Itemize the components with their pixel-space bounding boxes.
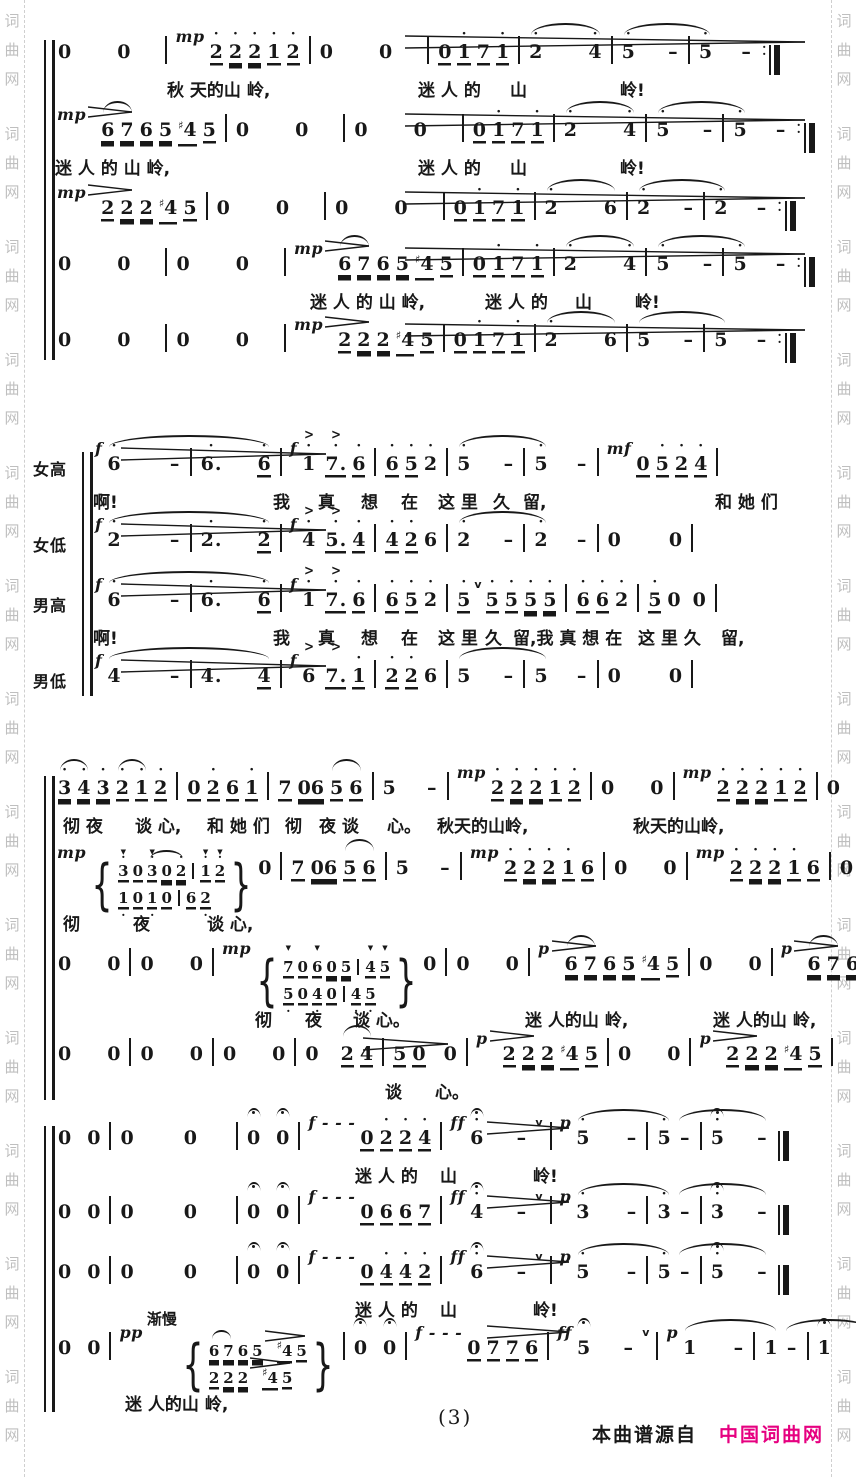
spacer <box>133 345 159 346</box>
watermark-char: 网 <box>4 1085 19 1106</box>
rest-note: 0 <box>360 1201 373 1223</box>
notation-row: 00mp2·2·2·1·2·0001·71·2·4·5·–5·–·· <box>55 36 811 76</box>
system-4: 000000f - - -02·2·4·ff6·–vp5·–5·–5·–迷 人 … <box>55 1122 811 1416</box>
octave-dot-above: · <box>562 848 575 853</box>
spacer <box>157 969 187 970</box>
rest-note: 0 <box>58 1043 71 1065</box>
note: 6· <box>107 453 120 475</box>
fermata-icon <box>276 1108 289 1117</box>
octave-dot-above: · <box>699 32 712 37</box>
note: 4 <box>360 1043 373 1065</box>
rest-note: 0 <box>840 857 853 879</box>
lyric-text: 秋天的山岭, <box>437 812 528 837</box>
lyric-text: 这 里 <box>438 624 478 649</box>
note: 5 <box>341 959 351 976</box>
dash-note: – <box>515 1127 527 1149</box>
note: 2· <box>380 1127 393 1149</box>
thick-bar <box>783 1265 789 1295</box>
slur-group: 5·–5· <box>653 248 749 282</box>
note: 6· <box>385 453 398 475</box>
barline <box>565 584 567 612</box>
note: 7 <box>477 41 490 63</box>
note: 5· <box>505 589 518 611</box>
note: 2· <box>207 777 220 799</box>
music-line: 0000mp6765♯4501·71·2·4·5·–5·–··迷 人 的 山 岭… <box>55 248 811 314</box>
octave-dot-above: · <box>576 1118 589 1123</box>
octave-dot-above: · <box>694 444 707 449</box>
octave-dot-above: · <box>201 520 222 525</box>
spacer <box>781 1353 783 1354</box>
dash-note: – <box>755 329 767 351</box>
note: 2 <box>120 197 133 219</box>
spacer <box>137 1217 181 1218</box>
octave-dot-above: · <box>385 580 398 585</box>
thick-bar <box>774 45 780 75</box>
note: 1· <box>531 119 544 141</box>
music-line: 0000mp222♯4501·71·2·65–5–·· <box>55 324 811 364</box>
octave-dot-above: · <box>755 768 768 773</box>
note: 4· <box>623 253 636 275</box>
octave-dot-above: · <box>529 768 542 773</box>
spacer <box>592 1217 622 1218</box>
octave-dot-above: · <box>229 32 242 37</box>
barline <box>686 852 688 880</box>
lyrics-row: 谈心。 <box>55 1078 811 1104</box>
note: 4· <box>588 41 601 63</box>
slur-group: 3·–3· <box>573 1196 673 1230</box>
slur-group: 5·–5· <box>454 448 550 482</box>
watermark-char: 词 <box>4 123 19 144</box>
watermark-char: 曲 <box>836 378 851 399</box>
octave-dot-above: · <box>623 110 636 115</box>
watermark-char: 网 <box>4 859 19 880</box>
note: 5 <box>282 1370 292 1387</box>
sharp-icon: ♯ <box>641 953 646 966</box>
dash-note: – <box>625 1201 637 1223</box>
rest-note: 0 <box>473 253 486 275</box>
music-line: 男低f4–4.4f6>7.>1·2·2·65–5–00 <box>55 660 811 700</box>
lyrics-row: 啊!我真想在这 里久留,我 真 想 在这 里 久留, <box>93 624 811 650</box>
note: 6 <box>380 1201 393 1223</box>
octave-dot-above: · <box>325 444 346 449</box>
note: 2· <box>749 857 762 879</box>
breath-mark-icon: v <box>474 578 481 591</box>
octave-dot-above: · <box>380 1118 393 1123</box>
rest-note: 0 <box>133 890 143 907</box>
dotted-rhythm-dot: . <box>215 529 222 551</box>
dynamic-mark: ff <box>450 1187 465 1206</box>
note: 3·▼ <box>118 863 128 880</box>
barline <box>829 852 831 880</box>
breath-mark-icon: v <box>535 1190 542 1203</box>
rest-note: 0 <box>506 953 519 975</box>
watermark-char: 词 <box>4 10 19 31</box>
octave-dot-above: · <box>717 768 730 773</box>
octave-dot-above: · <box>711 1118 724 1123</box>
notation-row: 0000mp222♯4501·71·2·65–5–·· <box>55 324 811 364</box>
note: 5 <box>457 665 470 687</box>
watermark-char: 曲 <box>4 1056 19 1077</box>
spacer <box>551 681 573 682</box>
octave-dot-above: · <box>730 848 743 853</box>
rest-note: 0 <box>438 41 451 63</box>
slur-group: 6·–6.·6· <box>104 448 273 482</box>
note: 2· <box>534 529 547 551</box>
page-number: (3) <box>438 1405 472 1429</box>
note: 2 <box>238 1370 248 1387</box>
note: 7▼ <box>283 959 293 976</box>
lyric-text: 谈 心, <box>207 910 253 935</box>
octave-dot-above: · <box>657 1192 670 1197</box>
spacer <box>672 135 698 136</box>
barline <box>673 772 675 800</box>
dynamic-mark: p <box>699 1029 711 1048</box>
note: 2· <box>176 863 186 880</box>
slur-group: 2·1· <box>113 772 151 806</box>
dynamic-mark: p <box>666 1323 678 1342</box>
note: 1·> <box>302 453 315 475</box>
barline <box>688 948 690 976</box>
thin-bar <box>785 201 787 231</box>
octave-dot-above: · <box>505 580 518 585</box>
chord-rows: 7▼06▼054▼5▼5·04·04·5· <box>281 955 392 1009</box>
octave-dot-above: · <box>470 1118 483 1123</box>
note: 6 <box>807 953 820 975</box>
spacer <box>200 1143 230 1144</box>
notation-row: 000000f - - -04·4·2·ff6·–vp5·–5·–5·– <box>55 1256 811 1296</box>
barline <box>176 772 178 800</box>
barline <box>446 524 448 552</box>
brace-close-icon: } <box>312 1338 333 1393</box>
watermark-char: 曲 <box>836 39 851 60</box>
watermark-char: 网 <box>4 520 19 541</box>
octave-dot-above: · <box>457 32 470 37</box>
note: 6 <box>101 119 114 141</box>
spacer <box>715 57 737 58</box>
chord-stack: {6765♯45222♯45} <box>179 1339 337 1393</box>
notation-row: 0000mp{7▼06▼054▼5▼5·04·04·5·}000p6765♯45… <box>55 942 811 1006</box>
thin-bar <box>769 45 771 75</box>
dash-note: – <box>775 119 787 141</box>
watermark-char: 网 <box>836 68 851 89</box>
barline <box>646 1122 648 1150</box>
dynamic-mark: f - - - <box>415 1323 462 1342</box>
watermark-char: 曲 <box>836 830 851 851</box>
lyric-text: 彻 <box>63 910 80 935</box>
music-line: 00pp渐慢{6765♯45222♯45}00f - - -0776ff5–vp… <box>55 1326 811 1416</box>
spacer <box>727 1143 753 1144</box>
barline <box>597 448 599 476</box>
barline <box>646 1256 648 1284</box>
spacer <box>580 135 620 136</box>
octave-dot-above: · <box>736 768 749 773</box>
note: 6 <box>140 119 153 141</box>
dynamic-mark: f <box>290 439 297 458</box>
brace-close-icon: } <box>396 954 417 1009</box>
watermark-char: 词 <box>4 236 19 257</box>
spacer <box>672 269 698 270</box>
rest-note: 0 <box>298 959 308 976</box>
lyric-text: 彻 夜 <box>63 812 103 837</box>
barline <box>294 1038 296 1066</box>
octave-dot-above: · <box>615 580 628 585</box>
dynamic-mark: f <box>95 439 102 458</box>
music-line: 000000f - - -0667ff4·–vp3·–3·–3·– <box>55 1196 811 1236</box>
rest-note: 0 <box>58 253 71 275</box>
barline <box>716 448 718 476</box>
rest-note: 0 <box>601 777 614 799</box>
thin-bar <box>778 1205 780 1235</box>
marcato-icon: ▼ <box>150 848 155 855</box>
brace-close-icon: } <box>231 858 252 913</box>
barline <box>831 1038 833 1066</box>
note: 2 <box>377 329 390 351</box>
rest-note: 0 <box>117 253 130 275</box>
rest-note: 0 <box>58 1201 71 1223</box>
note: 6· <box>352 453 365 475</box>
note: 2· <box>564 253 577 275</box>
lyric-text: 秋 天的山 岭, <box>167 76 270 101</box>
rest-note: 0 <box>383 1337 396 1359</box>
slur-group: 24 <box>338 1038 376 1072</box>
dash-note: – <box>679 1201 691 1223</box>
octave-dot-above: · <box>96 768 109 773</box>
spacer <box>530 1277 534 1278</box>
final-barline <box>778 1262 789 1296</box>
lyric-text: 夜 <box>133 910 150 935</box>
system-1: 00mp2·2·2·1·2·0001·71·2·4·5·–5·–··秋 天的山 … <box>55 36 811 364</box>
barline <box>357 959 359 975</box>
note: 4 <box>257 665 270 687</box>
note: 5· <box>656 119 669 141</box>
octave-dot-above: · <box>385 656 398 661</box>
spacer <box>74 969 104 970</box>
spacer <box>715 969 745 970</box>
octave-dot-above: · <box>492 244 505 249</box>
octave-dot-above: · <box>473 188 486 193</box>
octave-dot-above: · <box>543 580 556 585</box>
dynamic-mark: mp <box>457 763 486 782</box>
watermark-char: 网 <box>836 1198 851 1219</box>
note: 5 <box>714 329 727 351</box>
spacer <box>137 1143 181 1144</box>
thick-bar <box>790 333 796 363</box>
note: 1· <box>147 890 157 907</box>
dash-note: – <box>622 1337 634 1359</box>
note: 4· <box>312 986 322 1003</box>
octave-dot-above: · <box>564 244 577 249</box>
note: 2· <box>210 41 223 63</box>
octave-dot-above: · <box>714 188 727 193</box>
note: 4. <box>201 665 222 687</box>
barline <box>523 524 525 552</box>
lyric-text: 在 <box>401 624 418 649</box>
spacer <box>637 1353 641 1354</box>
rest-note: 0 <box>161 890 171 907</box>
rest-note: 0 <box>58 1261 71 1283</box>
lyric-text: 谈 心, <box>135 812 181 837</box>
octave-dot-above: · <box>257 580 270 585</box>
spacer <box>74 345 114 346</box>
note: 7 <box>511 253 524 275</box>
rest-note: 0 <box>107 1043 120 1065</box>
dynamic-mark: ff <box>557 1323 572 1342</box>
slur-group: 67 <box>98 114 136 148</box>
octave-dot-above: · <box>486 580 499 585</box>
watermark-char: 曲 <box>836 604 851 625</box>
thick-bar <box>809 123 815 153</box>
note: 2 <box>140 197 153 219</box>
octave-dot-above: · <box>787 848 800 853</box>
barline <box>722 114 724 142</box>
dotted-rhythm-dot: . <box>215 665 222 687</box>
dash-note: – <box>576 529 588 551</box>
spacer <box>252 135 292 136</box>
octave-dot-above: · <box>418 1252 431 1257</box>
octave-dot-above: · <box>352 580 365 585</box>
octave-dot-above: · <box>424 580 437 585</box>
note: 1·> <box>302 589 315 611</box>
thin-bar <box>804 257 806 287</box>
watermark-char: 词 <box>836 349 851 370</box>
lyric-text: 留,我 真 想 在 <box>513 624 622 649</box>
watermark-char: 曲 <box>836 1282 851 1303</box>
footer-source: 本曲谱源自中国词曲网 <box>592 1420 824 1447</box>
slur-arc <box>658 101 744 113</box>
barline <box>190 584 192 612</box>
rest-note: 0 <box>748 953 761 975</box>
fermata-icon <box>470 1108 483 1117</box>
octave-dot-above: · <box>491 768 504 773</box>
rest-note: 0 <box>236 329 249 351</box>
watermark-char: 曲 <box>4 943 19 964</box>
note: 1· <box>457 41 470 63</box>
dash-note: – <box>732 1337 744 1359</box>
note: 1 <box>764 1337 777 1359</box>
spacer <box>843 793 856 794</box>
rest-note: 0 <box>223 1043 236 1065</box>
thick-bar <box>790 201 796 231</box>
barline <box>309 36 311 64</box>
octave-dot-above: · <box>457 444 470 449</box>
dash-note: – <box>740 41 752 63</box>
note: 5 <box>440 253 453 275</box>
barline <box>688 36 690 64</box>
rest-note: 0 <box>423 953 436 975</box>
octave-dot-above: · <box>531 244 544 249</box>
barline <box>372 772 374 800</box>
spacer <box>224 605 254 606</box>
accent-icon: > <box>331 429 341 443</box>
octave-dot-above: · <box>325 580 346 585</box>
rest-note: 0 <box>650 777 663 799</box>
notation-row: 3·4·3·2·1·2·02·61·706565–mp2·2·2·1·2·00m… <box>55 772 811 812</box>
slur-group: 2·6 <box>542 192 620 226</box>
spacer <box>411 213 437 214</box>
note: 2· <box>257 529 270 551</box>
slur-group: 56 <box>340 852 378 886</box>
music-line: 女高f6·–6.·6·f1·>7.·>6·6·5·2·5·–5·–mf05·2·… <box>55 448 811 514</box>
slur-group: 67 <box>335 248 373 282</box>
note: 2 <box>357 329 370 351</box>
watermark-char: 曲 <box>4 1395 19 1416</box>
note: 5· <box>283 986 293 1003</box>
spacer <box>699 1353 729 1354</box>
note: 6 <box>807 857 820 879</box>
rest-note: 0 <box>184 1127 197 1149</box>
note: 3· <box>58 777 71 799</box>
watermark-char: 词 <box>836 801 851 822</box>
dash-note: – <box>667 41 679 63</box>
barline <box>374 584 376 612</box>
octave-dot-above: · <box>154 768 167 773</box>
barline <box>343 986 345 1002</box>
lyric-text: 这 里 久 <box>638 624 701 649</box>
octave-dot-above: · <box>116 768 129 773</box>
barline <box>689 1038 691 1066</box>
note: 7.·> <box>325 589 346 611</box>
note: 2· <box>116 777 129 799</box>
barline <box>165 324 167 352</box>
watermark-char: 曲 <box>836 265 851 286</box>
spacer <box>133 269 159 270</box>
dynamic-mark: mp <box>470 843 499 862</box>
octave-dot-above: · <box>656 444 669 449</box>
note: 6 <box>604 197 617 219</box>
note: 6 <box>424 665 437 687</box>
barline <box>691 660 693 688</box>
rest-note: 0 <box>667 589 680 611</box>
octave-dot-above: · <box>529 32 542 37</box>
note: 2· <box>637 197 650 219</box>
rest-note: 0 <box>667 1043 680 1065</box>
note: ♯4 <box>159 197 178 222</box>
octave-dot-above: · <box>711 1192 724 1197</box>
fermata-icon <box>247 1108 260 1117</box>
spacer <box>750 269 772 270</box>
barline <box>816 772 818 800</box>
barline <box>700 1256 702 1284</box>
barline <box>192 863 194 879</box>
note: 5· <box>656 253 669 275</box>
rest-note: 0 <box>354 119 367 141</box>
lyric-text: 迷 人的山 岭, <box>525 1006 628 1031</box>
rest-note: 0 <box>305 1043 318 1065</box>
spacer <box>653 213 679 214</box>
slur-group: 3·▼02· <box>145 859 188 883</box>
note: 2· <box>200 890 210 907</box>
note: 6 <box>238 1343 248 1360</box>
voice-label: 女高 <box>33 456 77 480</box>
octave-dot-above: · <box>623 244 636 249</box>
rest-note: 0 <box>107 953 120 975</box>
note: 6 <box>846 953 856 975</box>
system-barline <box>44 1126 55 1412</box>
octave-dot-above: · <box>794 768 807 773</box>
note: 5 <box>393 1043 406 1065</box>
note: 2· <box>287 41 300 63</box>
octave-dot-above: · <box>424 444 437 449</box>
octave-dot-above: · <box>201 444 222 449</box>
spacer <box>580 269 620 270</box>
octave-dot-above: · <box>302 580 315 585</box>
dash-note: – <box>625 1127 637 1149</box>
barline <box>212 948 214 976</box>
footer-source-name[interactable]: 中国词曲网 <box>719 1424 824 1446</box>
sharp-icon: ♯ <box>784 1043 789 1056</box>
spacer <box>239 1059 269 1060</box>
brace-open-icon: { <box>182 1338 203 1393</box>
